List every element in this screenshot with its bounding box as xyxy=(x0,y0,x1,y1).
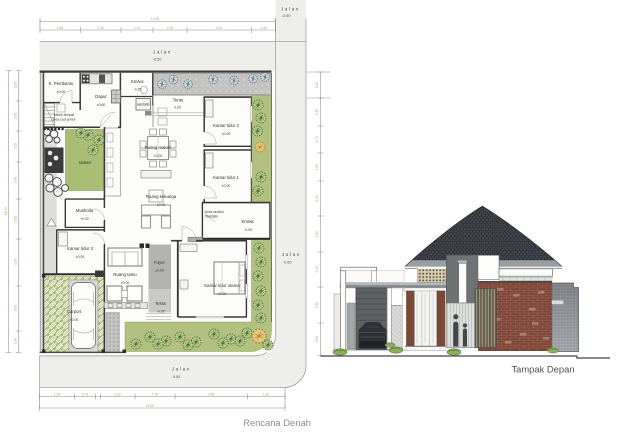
svg-text:3.00: 3.00 xyxy=(14,305,18,311)
svg-text:2.40: 2.40 xyxy=(97,26,104,30)
svg-text:Kamar tidur 1: Kamar tidur 1 xyxy=(213,175,239,180)
svg-text:±0.00: ±0.00 xyxy=(154,154,163,158)
svg-text:Ruang makan: Ruang makan xyxy=(145,145,172,150)
svg-text:±0.00: ±0.00 xyxy=(121,281,130,285)
svg-text:Jalan: Jalan xyxy=(153,50,172,55)
svg-text:±0.00: ±0.00 xyxy=(157,203,166,207)
svg-text:Jalan: Jalan xyxy=(172,367,191,372)
svg-text:taman: taman xyxy=(79,160,92,165)
svg-text:wastafel: wastafel xyxy=(137,103,150,107)
svg-text:12.06: 12.06 xyxy=(151,17,159,21)
svg-text:1.35: 1.35 xyxy=(152,392,159,396)
svg-text:2.30: 2.30 xyxy=(315,302,319,308)
svg-text:-0.25: -0.25 xyxy=(134,88,142,92)
svg-text:-0.50: -0.50 xyxy=(282,14,290,18)
svg-text:-0.50: -0.50 xyxy=(283,261,291,265)
svg-text:2.56: 2.56 xyxy=(57,26,64,30)
svg-text:-0.50: -0.50 xyxy=(153,58,161,62)
svg-text:-0.03: -0.03 xyxy=(157,310,165,314)
svg-text:4.00: 4.00 xyxy=(216,26,223,30)
svg-text:Mesin tempat: Mesin tempat xyxy=(54,113,74,117)
svg-text:Area wudhu/: Area wudhu/ xyxy=(205,210,224,214)
svg-text:Rencana Denah: Rencana Denah xyxy=(243,417,311,428)
svg-text:2.05: 2.05 xyxy=(14,143,18,149)
svg-text:2.30: 2.30 xyxy=(315,266,319,272)
svg-text:2.48: 2.48 xyxy=(208,392,215,396)
svg-text:±0.00: ±0.00 xyxy=(222,132,231,136)
svg-text:-0.05: -0.05 xyxy=(244,228,252,232)
svg-text:2.40: 2.40 xyxy=(14,177,18,183)
svg-text:Tampak Depan: Tampak Depan xyxy=(511,364,574,375)
svg-text:1.40: 1.40 xyxy=(14,338,18,344)
svg-text:1.30: 1.30 xyxy=(263,392,270,396)
svg-text:Wastafel: Wastafel xyxy=(205,215,218,219)
svg-text:1.62: 1.62 xyxy=(315,82,319,88)
svg-text:1.80: 1.80 xyxy=(315,109,319,115)
svg-text:±0.00: ±0.00 xyxy=(70,318,79,322)
svg-text:Kamar tidur 2: Kamar tidur 2 xyxy=(213,123,239,128)
svg-text:1.46: 1.46 xyxy=(260,26,267,30)
svg-text:2.60: 2.60 xyxy=(14,216,18,222)
svg-text:Kamar tidur utama: Kamar tidur utama xyxy=(204,283,240,288)
svg-text:K. Pembantu: K. Pembantu xyxy=(49,81,74,86)
svg-text:±0.00: ±0.00 xyxy=(76,255,85,259)
svg-text:18.70: 18.70 xyxy=(4,207,8,215)
svg-text:±0.60: ±0.60 xyxy=(97,103,106,107)
svg-text:1.20: 1.20 xyxy=(114,392,121,396)
svg-text:±0.00: ±0.00 xyxy=(222,184,231,188)
svg-text:±0.00: ±0.00 xyxy=(218,292,227,296)
svg-text:Ruang keluarga: Ruang keluarga xyxy=(146,194,177,199)
svg-text:Km/wc: Km/wc xyxy=(242,219,256,224)
svg-text:2.00: 2.00 xyxy=(14,113,18,119)
svg-text:Ruang tamu: Ruang tamu xyxy=(113,272,137,277)
svg-text:0.75: 0.75 xyxy=(82,392,89,396)
svg-text:Musholla: Musholla xyxy=(76,208,94,213)
svg-text:1.20: 1.20 xyxy=(54,392,61,396)
svg-text:+0.30: +0.30 xyxy=(80,217,89,221)
svg-text:Km/wc: Km/wc xyxy=(131,79,145,84)
svg-text:3.10: 3.10 xyxy=(14,259,18,265)
svg-text:Teras: Teras xyxy=(155,301,166,306)
svg-text:1.70: 1.70 xyxy=(315,136,319,142)
svg-text:15.30: 15.30 xyxy=(146,404,154,408)
svg-text:Jalan: Jalan xyxy=(282,252,301,257)
svg-text:0.03: 0.03 xyxy=(174,106,181,110)
svg-text:Dapur: Dapur xyxy=(95,94,107,99)
svg-text:1.80: 1.80 xyxy=(315,164,319,170)
svg-text:2.30: 2.30 xyxy=(315,231,319,237)
svg-text:Carport: Carport xyxy=(67,309,82,314)
svg-text:±0.00: ±0.00 xyxy=(155,269,164,273)
svg-text:2.16: 2.16 xyxy=(167,26,174,30)
svg-text:Teras: Teras xyxy=(173,98,184,103)
svg-text:2.00: 2.00 xyxy=(14,82,18,88)
svg-text:Jalan: Jalan xyxy=(281,7,300,12)
svg-text:±0.00: ±0.00 xyxy=(57,90,66,94)
svg-text:0.50: 0.50 xyxy=(173,375,180,379)
svg-text:2.20: 2.20 xyxy=(315,195,319,201)
svg-text:area cuci jemur: area cuci jemur xyxy=(52,118,76,122)
svg-text:Kamar tidur 3: Kamar tidur 3 xyxy=(67,246,93,251)
svg-text:Foyer: Foyer xyxy=(154,260,166,265)
svg-text:2.10: 2.10 xyxy=(134,26,141,30)
svg-text:2.00: 2.00 xyxy=(315,336,319,342)
